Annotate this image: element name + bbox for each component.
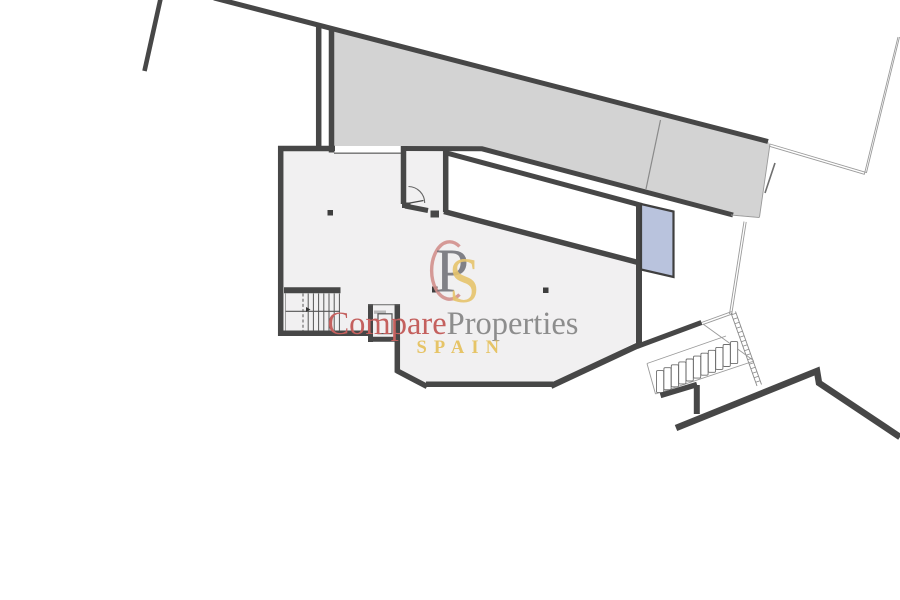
svg-text:CompareProperties: CompareProperties <box>328 306 579 342</box>
svg-text:SPAIN: SPAIN <box>417 338 507 358</box>
